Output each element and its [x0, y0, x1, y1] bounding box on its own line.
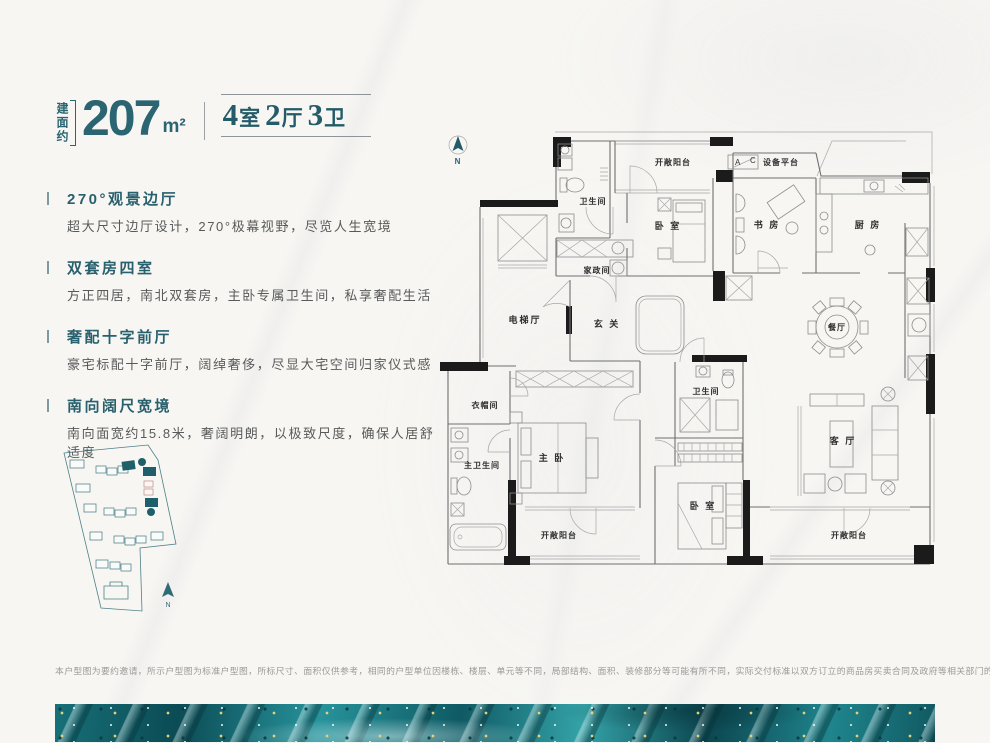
- feature-bullet-bar: [47, 399, 49, 412]
- marble-strip-decoration: [55, 704, 935, 742]
- foyer-rug: [636, 296, 684, 354]
- feature-title: 双套房四室: [67, 257, 155, 278]
- layout-rule-bottom: [221, 136, 371, 137]
- disclaimer-text: 本户型图为要约邀请，所示户型图为标准户型图，所标尺寸、面积仅供参考，相同的户型单…: [55, 664, 940, 677]
- room-label-laundry: 家政间: [584, 265, 611, 275]
- area-value: 207: [82, 92, 159, 144]
- poster-page: 建面约 207 m² 4室2厅3卫 270°观景边厅 超大尺寸边厅设计，270°…: [0, 0, 990, 743]
- compass-label: N: [455, 157, 462, 166]
- ac-label-c: C: [750, 156, 756, 165]
- floorplan: N: [440, 128, 952, 570]
- baths-unit: 卫: [324, 102, 346, 132]
- feature-desc: 方正四居，南北双套房，主卧专属卫生间，私享奢配生活: [67, 285, 447, 304]
- siteplan-compass-icon: N: [162, 582, 174, 609]
- room-label-bedroom-top: 卧 室: [655, 220, 682, 231]
- baths-count: 3: [308, 100, 324, 130]
- room-label-bath-mid: 卫生间: [693, 386, 720, 396]
- bottom-bedroom-furniture: [678, 443, 742, 549]
- room-label-balcony-top: 开敞阳台: [655, 157, 691, 167]
- halls-unit: 厅: [282, 102, 304, 132]
- layout-summary: 4室2厅3卫: [221, 94, 371, 137]
- room-label-bath-top: 卫生间: [580, 196, 607, 206]
- room-label-balcony-bl: 开敞阳台: [541, 530, 577, 540]
- feature-bullet-bar: [47, 261, 49, 274]
- area-prefix-bracket: [70, 100, 76, 146]
- area-prefix-label: 建面约: [55, 102, 68, 144]
- feature-title: 南向阔尺宽境: [67, 395, 172, 416]
- room-label-bedroom-bottom: 卧 室: [690, 500, 717, 511]
- room-label-kitchen: 厨 房: [855, 219, 882, 230]
- feature-bullet-bar: [47, 330, 49, 343]
- feature-desc: 超大尺寸边厅设计，270°极幕视野，尽览人生宽境: [67, 216, 447, 235]
- feature-title: 奢配十字前厅: [67, 326, 172, 347]
- siteplan-buildings: [70, 458, 163, 599]
- room-label-balcony-br: 开敞阳台: [831, 530, 867, 540]
- room-label-dining: 餐厅: [827, 322, 846, 332]
- room-label-master-bedroom: 主 卧: [539, 452, 566, 463]
- shaft-hatches: [498, 144, 930, 387]
- feature-item: 270°观景边厅 超大尺寸边厅设计，270°极幕视野，尽览人生宽境: [47, 188, 447, 235]
- rooms-unit: 室: [239, 102, 261, 132]
- master-bathroom-fixtures: [450, 428, 506, 550]
- ac-label-a: A: [735, 158, 741, 167]
- area-unit: m²: [162, 116, 185, 138]
- halls-count: 2: [265, 100, 281, 130]
- room-label-foyer: 玄 关: [594, 318, 621, 329]
- kitchen-furniture: [816, 178, 928, 255]
- feature-item: 奢配十字前厅 豪宅标配十字前厅，阔绰奢侈，尽显大宅空间归家仪式感: [47, 326, 447, 373]
- room-label-equipment: 设备平台: [763, 157, 799, 167]
- rooms-count: 4: [223, 100, 239, 130]
- room-label-living: 客 厅: [829, 435, 857, 446]
- room-label-elevator-hall: 电梯厅: [508, 314, 541, 325]
- feature-bullet-bar: [47, 192, 49, 205]
- siteplan: N: [48, 436, 228, 636]
- siteplan-compass-label: N: [165, 602, 170, 609]
- feature-item: 双套房四室 方正四居，南北双套房，主卧专属卫生间，私享奢配生活: [47, 257, 447, 304]
- room-label-master-bath: 主卫生间: [464, 460, 500, 470]
- structural-wall-blocks: [440, 137, 935, 565]
- area-prefix-block: 建面约: [55, 100, 76, 146]
- feature-title: 270°观景边厅: [67, 188, 178, 209]
- north-compass-icon: N: [449, 136, 467, 166]
- mid-bathroom-fixtures: [680, 366, 738, 432]
- laundry-fixtures: [610, 260, 627, 276]
- room-label-cloakroom: 衣帽间: [472, 400, 499, 410]
- layout-text: 4室2厅3卫: [221, 95, 371, 136]
- header: 建面约 207 m² 4室2厅3卫: [55, 92, 371, 146]
- feature-desc: 豪宅标配十字前厅，阔绰奢侈，尽显大宅空间归家仪式感: [67, 354, 447, 373]
- header-divider: [204, 102, 205, 140]
- room-label-study: 书 房: [754, 219, 781, 230]
